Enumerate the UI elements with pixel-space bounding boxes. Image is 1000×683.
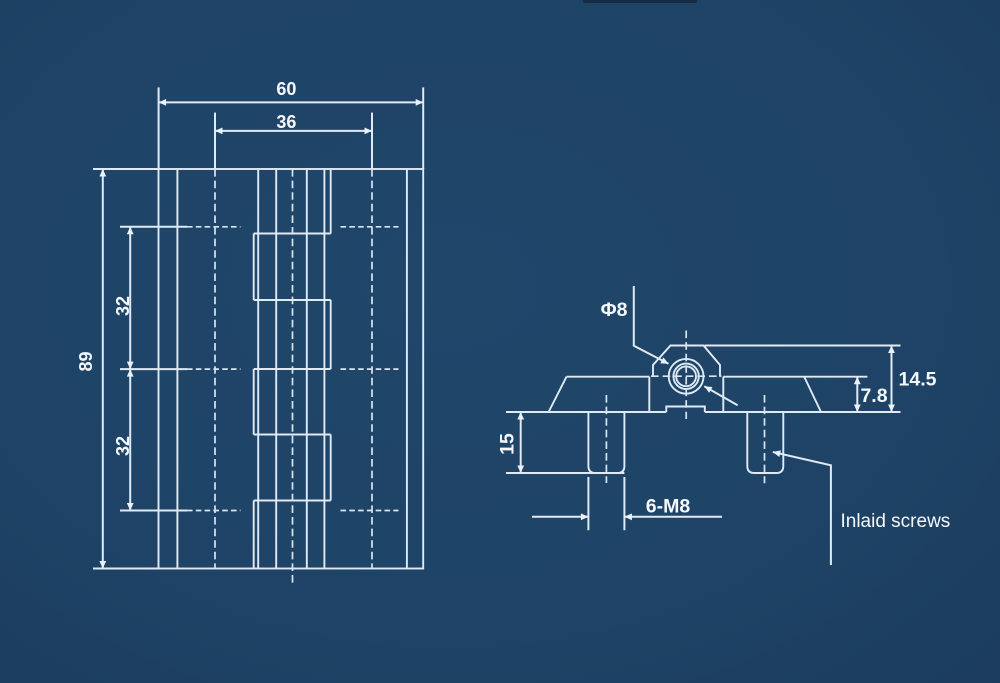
svg-text:Inlaid screws: Inlaid screws: [840, 511, 950, 532]
svg-text:89: 89: [76, 351, 96, 371]
svg-text:14.5: 14.5: [899, 368, 937, 390]
svg-text:Φ8: Φ8: [601, 299, 628, 321]
svg-text:32: 32: [113, 436, 133, 456]
svg-text:60: 60: [276, 79, 296, 99]
svg-text:15: 15: [496, 433, 518, 455]
svg-text:32: 32: [113, 296, 133, 316]
svg-text:7.8: 7.8: [860, 385, 887, 407]
svg-text:36: 36: [276, 112, 296, 132]
svg-text:6-M8: 6-M8: [646, 495, 691, 517]
